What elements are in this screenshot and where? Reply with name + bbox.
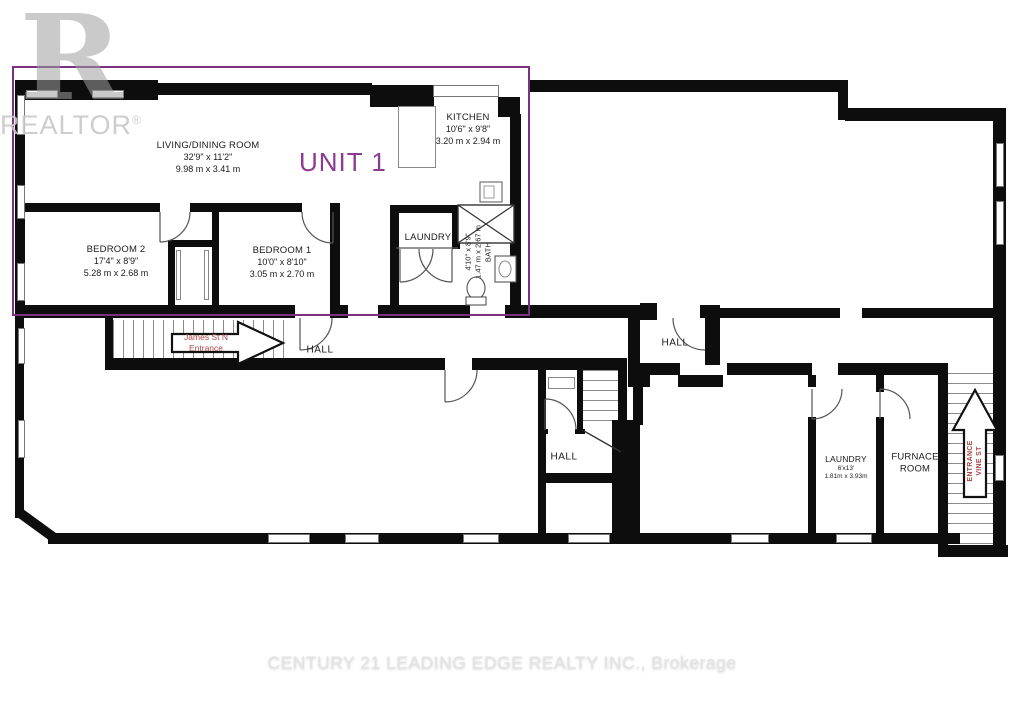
wall — [808, 375, 816, 387]
window — [18, 328, 25, 364]
wall — [472, 358, 538, 370]
wall — [876, 375, 884, 392]
wall — [540, 429, 548, 434]
wall — [938, 545, 1008, 557]
closet-shelf — [548, 377, 575, 389]
wall — [678, 375, 723, 387]
wall — [845, 108, 1003, 121]
wall — [618, 363, 627, 423]
door-arc-laundry-basement — [812, 389, 842, 419]
door-arc-lower-room — [445, 370, 477, 402]
wall — [577, 363, 583, 433]
room-name: HALL — [306, 344, 333, 357]
wall — [528, 80, 846, 92]
wall — [705, 310, 720, 365]
wall — [727, 363, 812, 375]
wall — [862, 308, 993, 318]
realtor-watermark: REALTOR® — [0, 110, 142, 141]
window — [836, 534, 872, 543]
window — [731, 534, 769, 543]
window — [995, 455, 1004, 481]
wall — [528, 305, 640, 318]
wall — [612, 420, 640, 535]
window — [268, 534, 310, 543]
window — [568, 534, 610, 543]
entrance-line1: VINE ST — [975, 440, 984, 481]
wall — [575, 429, 585, 434]
wall — [48, 533, 960, 544]
window — [996, 143, 1004, 187]
realtor-brand-text: REALTOR — [0, 110, 132, 140]
wall — [808, 417, 816, 537]
room-label-hall-lower: HALL — [550, 451, 577, 464]
entrance-line2: Entrance — [184, 343, 228, 354]
room-name: HALL — [550, 451, 577, 464]
window — [996, 201, 1004, 245]
registered-symbol: ® — [132, 113, 142, 127]
room-dims-ft: 6'x13' — [825, 465, 868, 473]
room-name: HALL — [661, 337, 688, 350]
wall — [640, 303, 657, 320]
realtor-logo-icon: R — [20, 0, 123, 127]
door-arc-furnace — [880, 389, 910, 419]
james-st-entrance-label: James St N Entrance — [184, 332, 228, 354]
wall — [720, 308, 840, 318]
wall — [838, 363, 938, 375]
room-name: LAUNDRY — [825, 454, 868, 465]
room-dims-m: 1.81m x 3.93m — [825, 474, 868, 482]
floor-plan: LIVING/DINING ROOM 32'9" x 11'2" 9.98 m … — [0, 0, 1024, 723]
room-label-laundry-basement: LAUNDRY 6'x13' 1.81m x 3.93m — [825, 454, 868, 482]
door-arc-stair-closet — [545, 399, 576, 430]
brokerage-watermark: CENTURY 21 LEADING EDGE REALTY INC., Bro… — [267, 653, 736, 674]
wall — [538, 363, 546, 535]
window — [18, 420, 25, 458]
window — [345, 534, 379, 543]
vine-st-entrance-label: ENTRANCE VINE ST — [966, 440, 984, 481]
wall — [876, 417, 884, 537]
room-label-hall-middle: HALL — [661, 337, 688, 350]
entrance-line1: James St N — [184, 332, 228, 343]
wall — [105, 358, 445, 370]
entrance-line2: ENTRANCE — [966, 440, 975, 481]
wall — [633, 363, 680, 375]
window — [463, 534, 499, 543]
room-label-furnace-room: FURNACE ROOM — [884, 452, 946, 477]
wall — [633, 375, 643, 425]
wall — [540, 473, 612, 483]
room-name: FURNACE ROOM — [884, 452, 946, 477]
room-label-hall-james: HALL — [306, 344, 333, 357]
